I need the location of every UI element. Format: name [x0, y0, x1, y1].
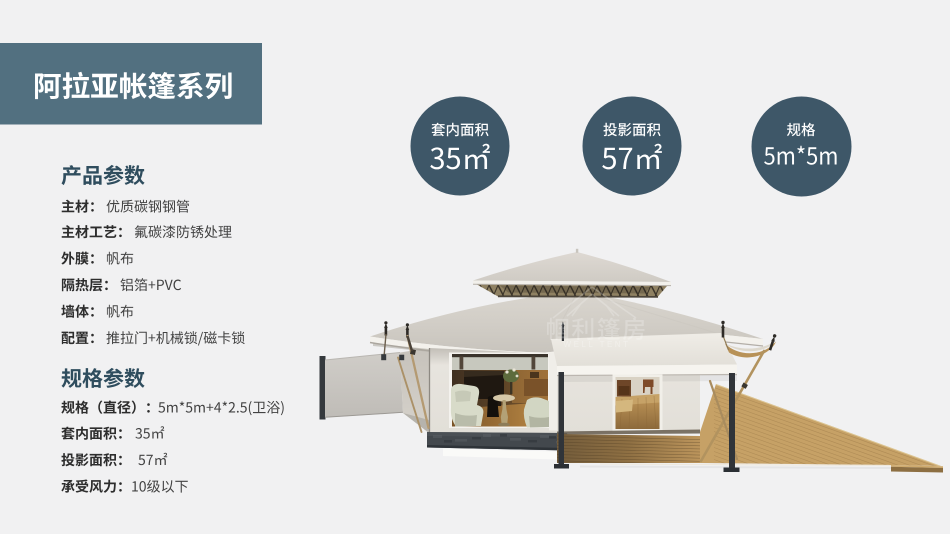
svg-text:WELL TENT: WELL TENT	[564, 340, 631, 349]
